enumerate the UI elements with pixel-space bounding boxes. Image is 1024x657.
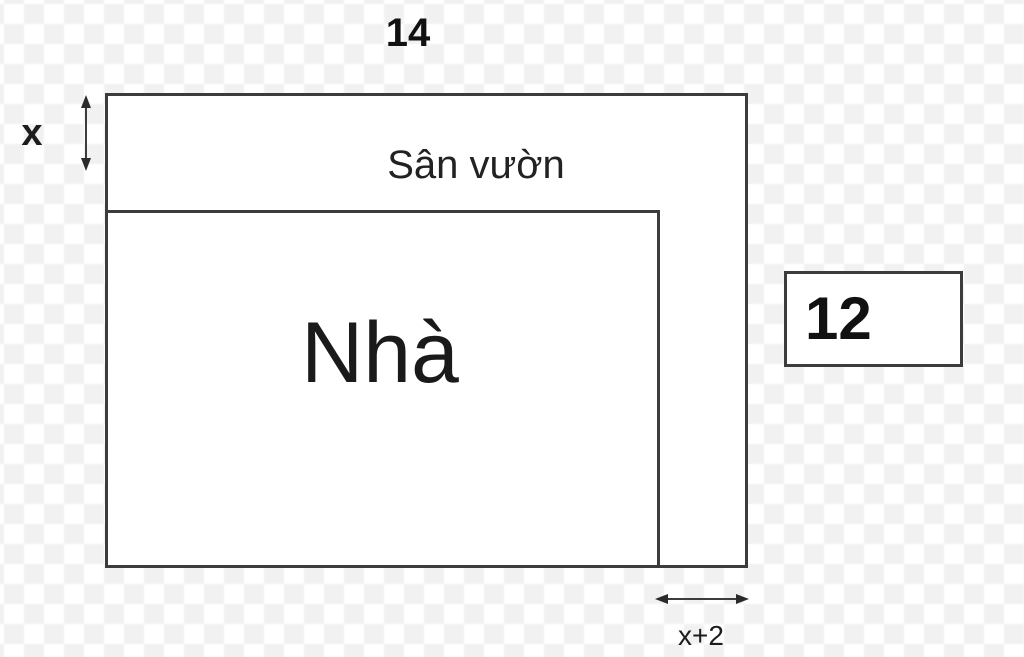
diagram-canvas: 14 Sân vườn Nhà x 12 x+2 bbox=[0, 0, 1024, 657]
horizontal-double-arrow-icon bbox=[654, 591, 750, 607]
top-width-label: 14 bbox=[338, 10, 478, 56]
vertical-double-arrow-icon bbox=[78, 94, 94, 172]
bottom-gap-label: x+2 bbox=[655, 620, 747, 652]
garden-label: Sân vườn bbox=[326, 142, 626, 188]
side-value-box: 12 bbox=[784, 271, 963, 367]
house-label: Nhà bbox=[230, 300, 530, 408]
strip-height-label: x bbox=[8, 112, 56, 156]
side-value-label: 12 bbox=[805, 289, 872, 349]
